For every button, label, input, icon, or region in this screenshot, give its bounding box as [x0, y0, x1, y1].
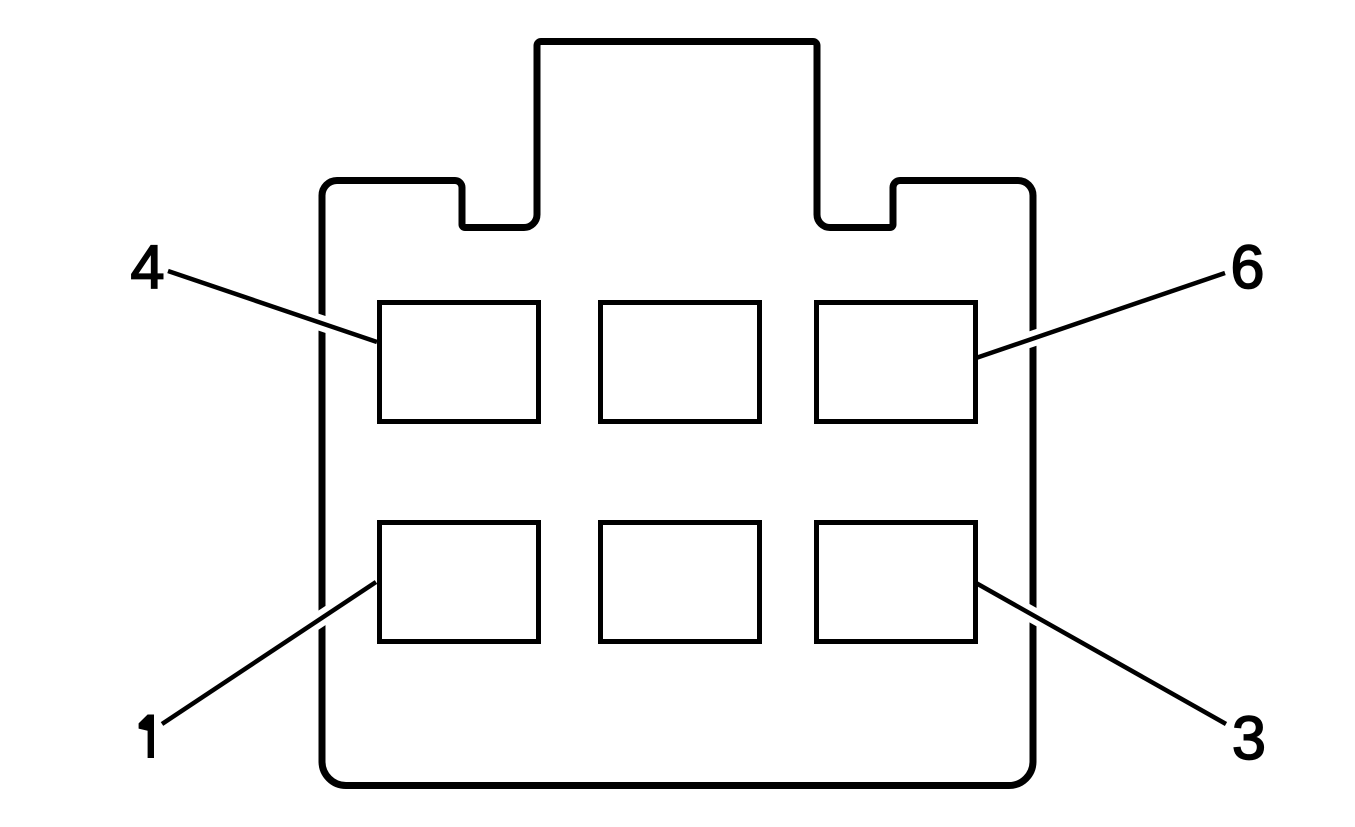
svg-text:6: 6 [1231, 233, 1265, 301]
svg-text:4: 4 [131, 233, 165, 301]
svg-text:3: 3 [1232, 704, 1266, 772]
